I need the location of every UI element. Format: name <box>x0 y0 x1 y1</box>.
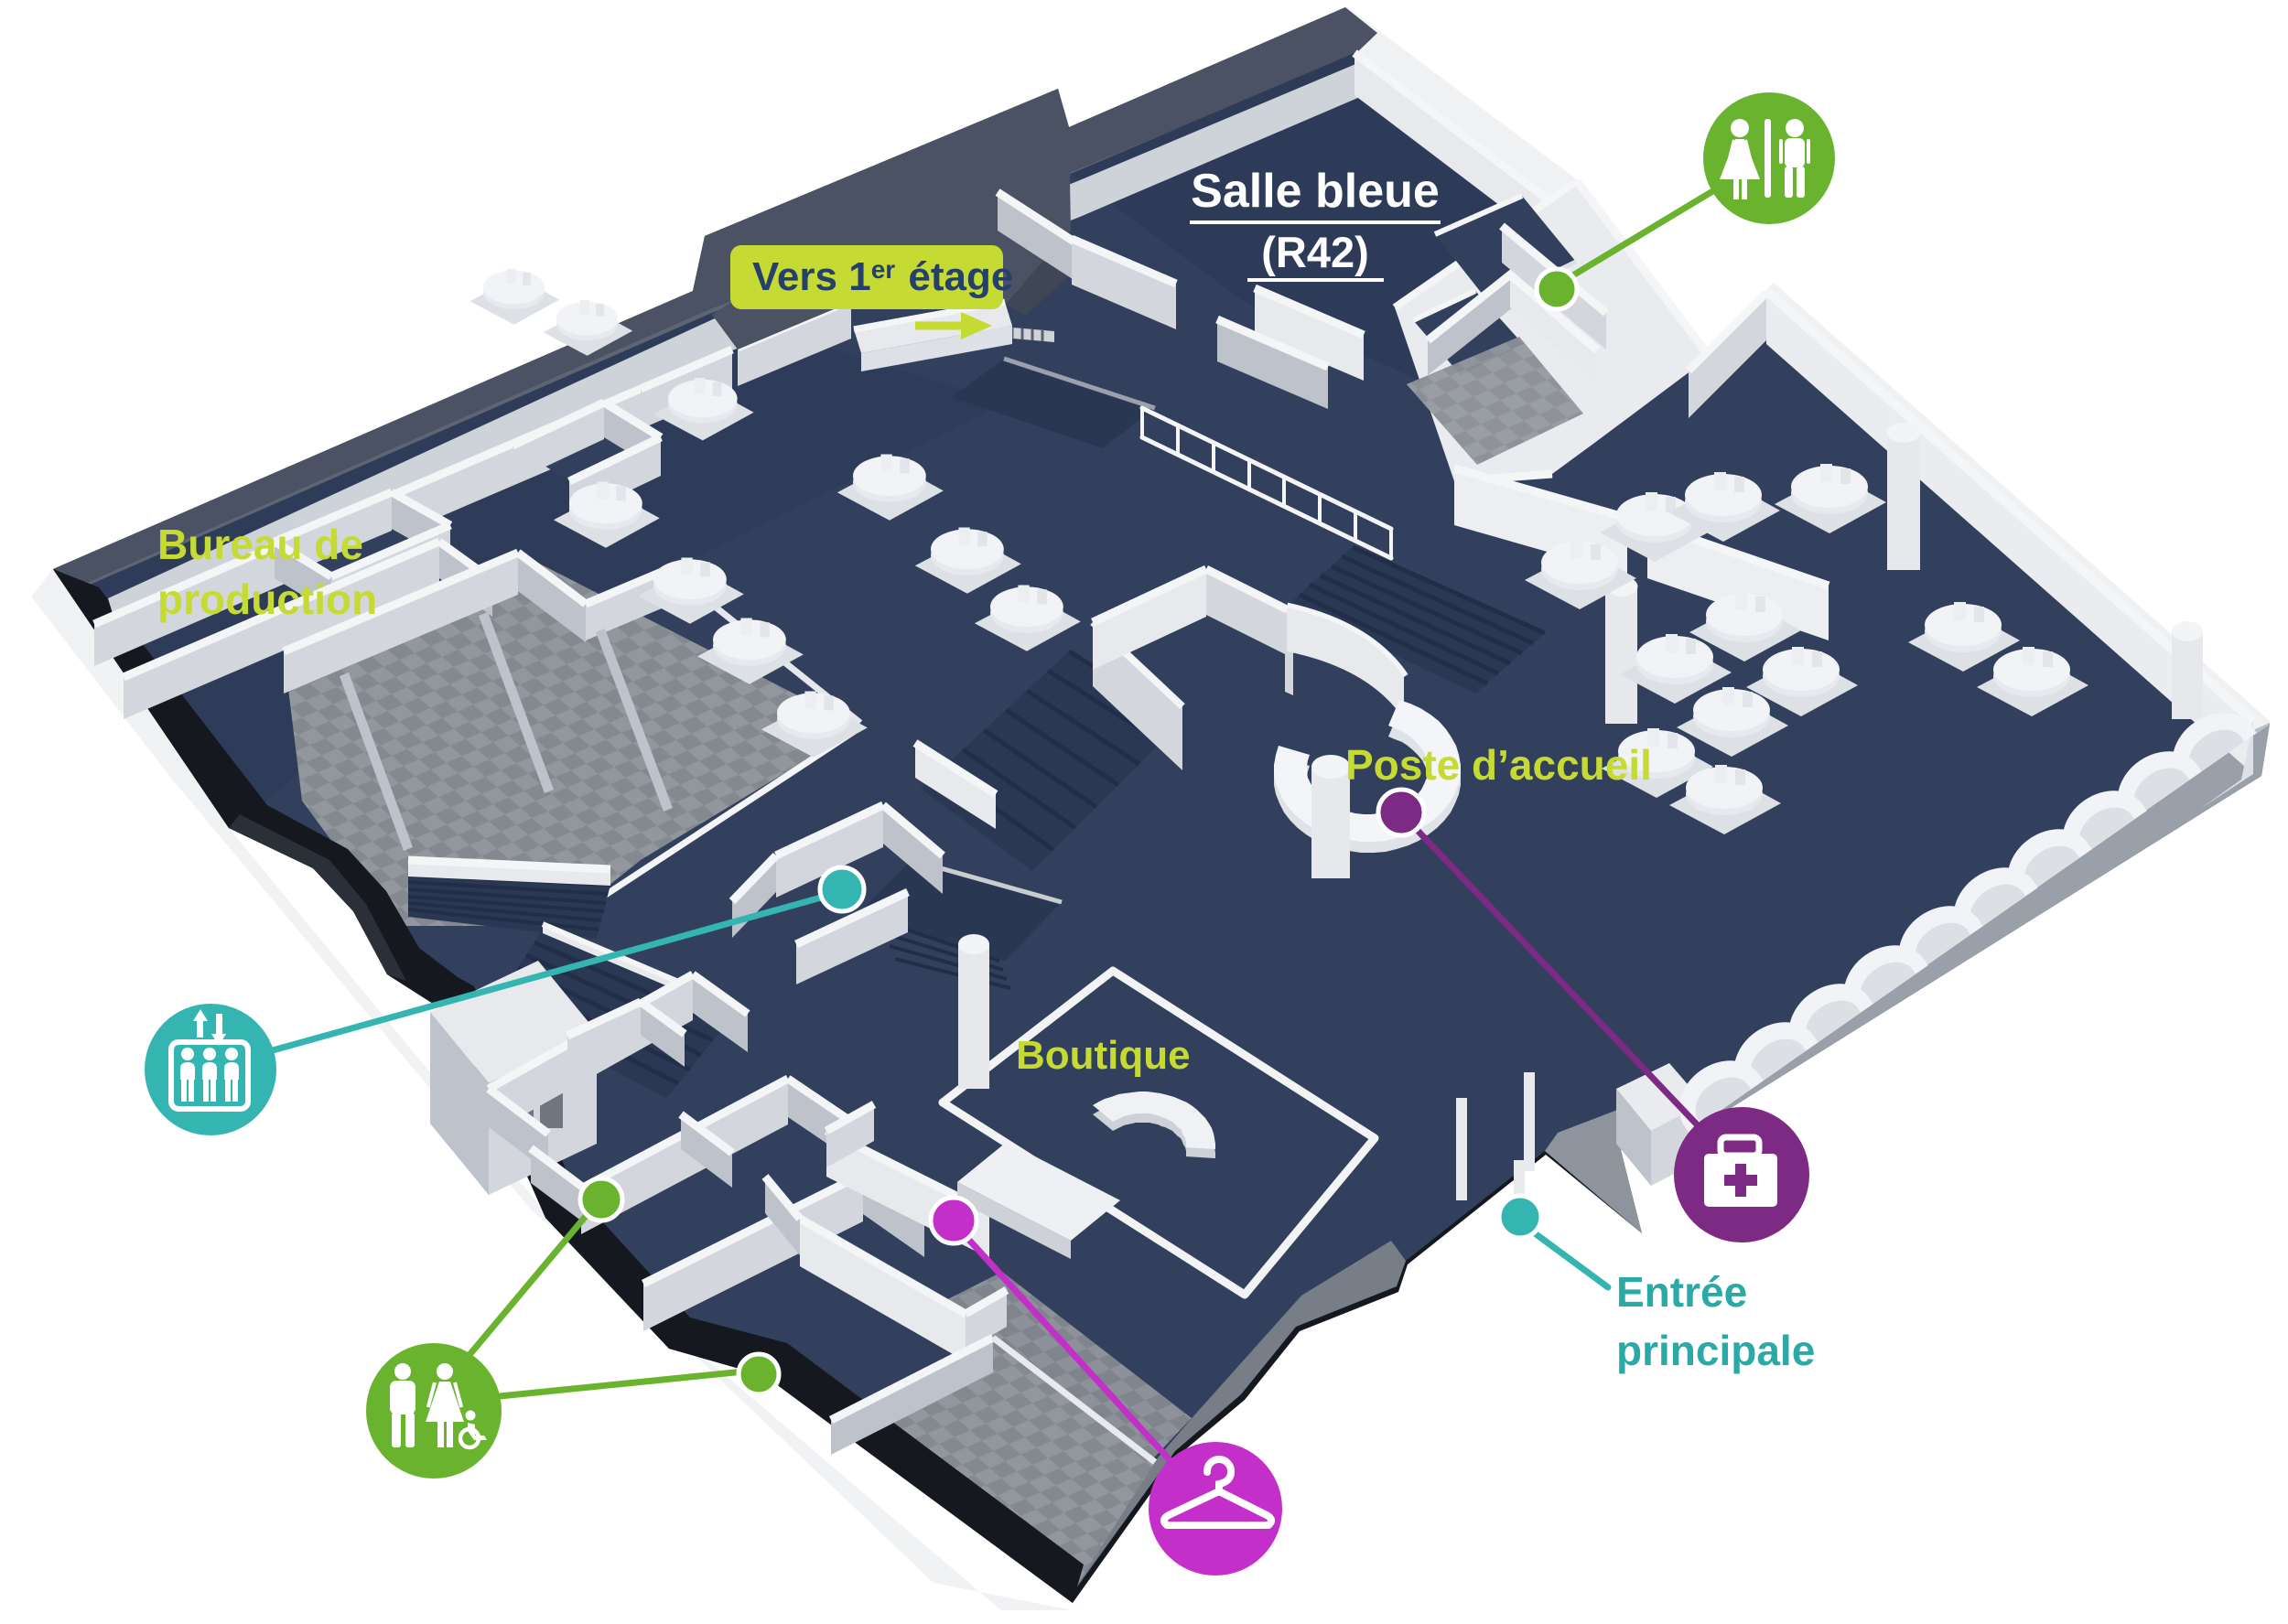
svg-text:Bureau de: Bureau de <box>157 521 363 568</box>
svg-text:Poste d’accueil: Poste d’accueil <box>1345 741 1652 789</box>
svg-text:Boutique: Boutique <box>1016 1033 1191 1078</box>
svg-text:Salle bleue: Salle bleue <box>1191 165 1440 218</box>
svg-text:Entrée: Entrée <box>1616 1268 1747 1316</box>
svg-text:production: production <box>157 575 377 623</box>
svg-text:principale: principale <box>1616 1327 1815 1374</box>
svg-text:(R42): (R42) <box>1261 228 1369 276</box>
